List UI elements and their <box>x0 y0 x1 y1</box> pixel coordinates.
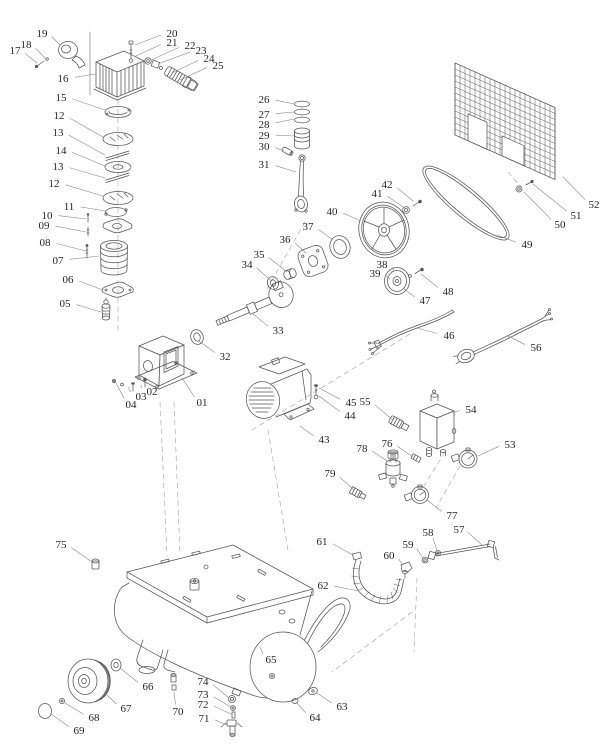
breather-plug <box>102 298 110 320</box>
leader-line-46 <box>417 328 437 334</box>
part-label-54: 54 <box>466 404 478 416</box>
head-studs <box>86 213 90 258</box>
part-label-36: 36 <box>280 234 292 246</box>
leader-line-28 <box>276 119 294 123</box>
leader-line-13 <box>70 168 105 178</box>
part-label-04: 04 <box>126 399 138 411</box>
leader-line-72 <box>214 706 231 714</box>
leader-line-12 <box>70 118 103 137</box>
part-label-07: 07 <box>53 255 65 267</box>
leader-line-64 <box>297 703 306 713</box>
piston-rings <box>295 101 310 123</box>
leader-line-71 <box>215 720 227 725</box>
leader-line-14 <box>72 152 105 166</box>
part-label-53: 53 <box>505 439 517 451</box>
leader-line-78 <box>373 451 387 461</box>
leader-line-34 <box>257 268 270 280</box>
leader-line-51 <box>533 184 566 211</box>
part-label-02: 02 <box>147 386 158 398</box>
hub-cap <box>39 704 52 719</box>
piston-pin <box>281 146 293 156</box>
wheel <box>68 659 110 703</box>
leader-line-75 <box>71 548 92 562</box>
leader-line-31 <box>276 166 296 172</box>
flywheel-bolt <box>413 200 422 206</box>
leader-line-01 <box>182 378 194 397</box>
part-label-19: 19 <box>37 28 49 40</box>
leader-line-67 <box>104 692 116 704</box>
part-label-01: 01 <box>197 397 208 409</box>
part-label-51: 51 <box>571 210 582 222</box>
part-label-25: 25 <box>213 60 225 72</box>
part-label-35: 35 <box>254 249 266 261</box>
leader-line-76 <box>398 446 413 457</box>
part-label-37: 37 <box>303 221 315 233</box>
part-label-30: 30 <box>259 141 271 153</box>
regulator <box>379 450 408 487</box>
part-label-58: 58 <box>423 527 435 539</box>
part-label-26: 26 <box>259 94 271 106</box>
part-label-77: 77 <box>447 510 459 522</box>
tank-dome <box>250 632 316 702</box>
leader-line-79 <box>340 477 354 490</box>
leader-line-21 <box>136 45 161 56</box>
cylinder-sleeve <box>101 241 128 276</box>
part-label-43: 43 <box>319 434 331 446</box>
shaft-seal <box>327 233 353 261</box>
plug-power-cord <box>453 309 553 367</box>
part-label-22: 22 <box>185 40 196 52</box>
part-label-33: 33 <box>273 325 285 337</box>
part-label-39: 39 <box>370 268 382 280</box>
part-label-64: 64 <box>310 712 322 724</box>
part-label-67: 67 <box>121 703 133 715</box>
drain-valve-parts <box>221 696 242 737</box>
cylinder-head <box>94 51 146 100</box>
leader-line-18 <box>36 48 46 59</box>
part-label-71: 71 <box>199 713 210 725</box>
leader-line-50 <box>524 192 551 219</box>
motor <box>242 357 314 422</box>
part-label-56: 56 <box>531 342 543 354</box>
leader-line-40 <box>343 213 361 221</box>
part-label-76: 76 <box>382 438 394 450</box>
part-label-11: 11 <box>64 201 75 213</box>
leader-line-20 <box>135 35 161 45</box>
leader-line-55 <box>375 405 393 420</box>
leader-line-58 <box>433 538 437 551</box>
part-label-57: 57 <box>454 524 466 536</box>
part-label-44: 44 <box>345 410 357 422</box>
leader-line-60 <box>399 559 403 565</box>
leader-line-23 <box>158 52 190 64</box>
braided-hose <box>352 552 405 604</box>
crankshaft <box>212 278 298 334</box>
part-label-40: 40 <box>327 206 339 218</box>
head-bolt <box>129 41 133 62</box>
part-label-73: 73 <box>198 689 210 701</box>
leader-line-37 <box>318 229 333 240</box>
part-label-46: 46 <box>444 330 456 342</box>
tank-port <box>289 619 295 623</box>
valve-plate-stack <box>103 107 133 233</box>
part-label-70: 70 <box>173 706 185 718</box>
air-filter <box>59 42 86 69</box>
part-label-32: 32 <box>220 351 231 363</box>
leader-line-59 <box>417 549 423 558</box>
leader-line-12 <box>66 185 103 196</box>
leader-line-07 <box>70 256 99 259</box>
bearing <box>266 275 280 291</box>
part-label-69: 69 <box>74 725 86 737</box>
leader-lines <box>25 35 585 726</box>
part-label-50: 50 <box>555 219 567 231</box>
leader-line-57 <box>469 533 483 546</box>
part-label-60: 60 <box>384 550 396 562</box>
part-label-21: 21 <box>167 37 178 49</box>
part-label-65: 65 <box>266 654 278 666</box>
part-label-59: 59 <box>403 539 415 551</box>
bearing-spacer <box>283 268 298 280</box>
leader-line-52 <box>563 177 585 199</box>
leader-line-24 <box>172 61 198 73</box>
tank-legs <box>137 640 175 674</box>
leader-line-69 <box>51 714 69 727</box>
leader-line-09 <box>56 226 86 232</box>
tank-drain-boss <box>232 688 241 696</box>
tank-platform <box>127 545 313 623</box>
part-label-47: 47 <box>420 295 432 307</box>
parts-diagram: 0102030405060708091011121314131215161718… <box>0 0 615 755</box>
belt-guard <box>455 63 555 180</box>
tank-handle <box>302 598 350 652</box>
part-label-15: 15 <box>56 92 68 104</box>
part-label-34: 34 <box>242 259 254 271</box>
head-fitting <box>145 58 163 70</box>
leader-line-47 <box>404 289 414 297</box>
connecting-rod <box>293 155 309 213</box>
tank-port <box>279 610 285 614</box>
part-label-61: 61 <box>317 536 328 548</box>
leader-line-68 <box>65 703 83 714</box>
part-label-12: 12 <box>49 178 60 190</box>
leader-line-43 <box>300 426 313 436</box>
leader-line-06 <box>79 281 103 290</box>
piston <box>295 128 310 149</box>
motor-power-cord <box>369 310 455 355</box>
part-label-62: 62 <box>318 580 329 592</box>
leader-line-25 <box>180 68 207 80</box>
part-label-74: 74 <box>198 676 210 688</box>
regulator-pin <box>411 454 421 463</box>
part-label-13: 13 <box>53 127 65 139</box>
leader-line-10 <box>59 216 86 219</box>
pressure-gauge-large <box>451 448 477 468</box>
leader-line-33 <box>252 313 268 326</box>
axle-nut <box>59 698 64 703</box>
motor-bolt <box>314 384 318 399</box>
leader-line-15 <box>73 99 105 110</box>
leader-line-03 <box>128 387 131 392</box>
part-label-18: 18 <box>21 39 33 51</box>
leader-line-74 <box>213 685 229 698</box>
part-label-08: 08 <box>40 237 52 249</box>
guard-screws <box>516 180 534 192</box>
drain-cock <box>171 674 176 691</box>
flywheel-washer <box>403 207 410 214</box>
part-label-49: 49 <box>522 239 534 251</box>
leader-line-29 <box>276 135 294 136</box>
leader-line-42 <box>397 188 413 201</box>
part-label-42: 42 <box>382 179 393 191</box>
leader-line-61 <box>333 544 353 555</box>
drive-belt <box>415 157 517 249</box>
axle-washer <box>111 659 121 671</box>
pressure-switch <box>420 390 456 457</box>
leader-line-26 <box>276 100 294 104</box>
part-label-66: 66 <box>143 681 155 693</box>
leader-line-22 <box>151 48 179 60</box>
leader-line-16 <box>75 74 96 77</box>
leader-line-27 <box>276 112 294 114</box>
oil-seal <box>189 328 205 346</box>
check-valve-fitting <box>388 415 409 431</box>
part-label-55: 55 <box>360 396 372 408</box>
part-label-12: 12 <box>54 110 65 122</box>
cylinder-gasket <box>102 282 133 297</box>
leader-line-66 <box>120 668 138 682</box>
leader-line-56 <box>508 336 525 344</box>
part-label-68: 68 <box>89 712 101 724</box>
pressure-gauge-small <box>404 485 428 504</box>
part-label-48: 48 <box>443 286 455 298</box>
part-label-63: 63 <box>337 701 349 713</box>
part-label-16: 16 <box>58 73 70 85</box>
platform-bolt <box>92 559 99 569</box>
part-label-52: 52 <box>589 199 600 211</box>
part-label-13: 13 <box>53 161 65 173</box>
part-label-05: 05 <box>60 298 72 310</box>
leader-line-17 <box>25 54 37 63</box>
tank-fitting <box>349 487 366 501</box>
part-label-79: 79 <box>325 468 337 480</box>
leader-line-53 <box>478 446 499 456</box>
leader-line-13 <box>69 135 105 155</box>
part-label-06: 06 <box>63 274 75 286</box>
part-label-75: 75 <box>56 539 68 551</box>
leader-line-32 <box>199 341 215 353</box>
part-label-10: 10 <box>42 210 54 222</box>
leader-line-05 <box>77 305 101 312</box>
leader-line-48 <box>421 274 438 287</box>
leader-line-62 <box>335 586 358 591</box>
leader-line-11 <box>81 207 105 211</box>
part-label-45: 45 <box>346 397 358 409</box>
part-label-14: 14 <box>56 145 68 157</box>
leader-line-70 <box>174 692 176 704</box>
leader-line-44 <box>319 396 340 411</box>
part-label-17: 17 <box>10 45 22 57</box>
leader-line-45 <box>319 388 340 399</box>
leader-line-19 <box>52 37 60 45</box>
diagram-canvas: 0102030405060708091011121314131215161718… <box>0 0 615 755</box>
leader-line-08 <box>57 244 86 251</box>
part-label-31: 31 <box>259 159 270 171</box>
part-label-78: 78 <box>357 443 369 455</box>
part-label-03: 03 <box>136 391 148 403</box>
leader-line-63 <box>317 693 331 703</box>
pulley-bolt <box>409 268 424 278</box>
outlet-tube <box>163 65 199 92</box>
